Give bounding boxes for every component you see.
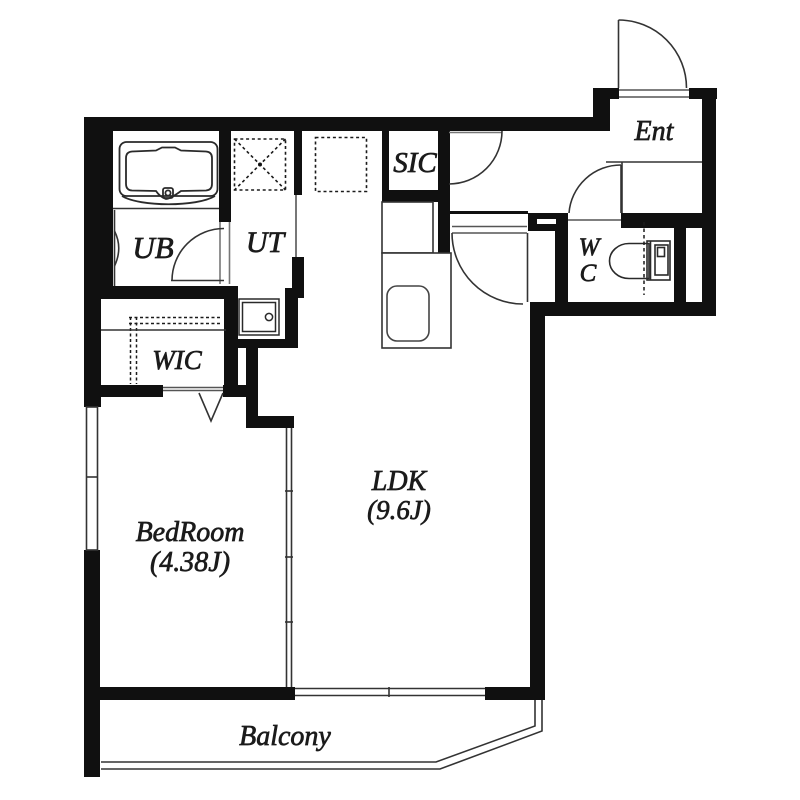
svg-text:WIC: WIC — [152, 345, 202, 375]
svg-text:(4.38J): (4.38J) — [150, 547, 230, 578]
svg-text:BedRoom: BedRoom — [136, 517, 245, 548]
svg-text:Balcony: Balcony — [239, 721, 331, 752]
svg-text:C: C — [580, 260, 597, 287]
svg-text:Ent: Ent — [634, 116, 675, 147]
svg-text:LDK: LDK — [371, 466, 428, 497]
svg-text:UB: UB — [132, 230, 173, 265]
svg-text:UT: UT — [246, 226, 287, 259]
svg-text:SIC: SIC — [393, 147, 437, 179]
svg-text:(9.6J): (9.6J) — [367, 495, 431, 525]
svg-text:W: W — [579, 234, 602, 261]
